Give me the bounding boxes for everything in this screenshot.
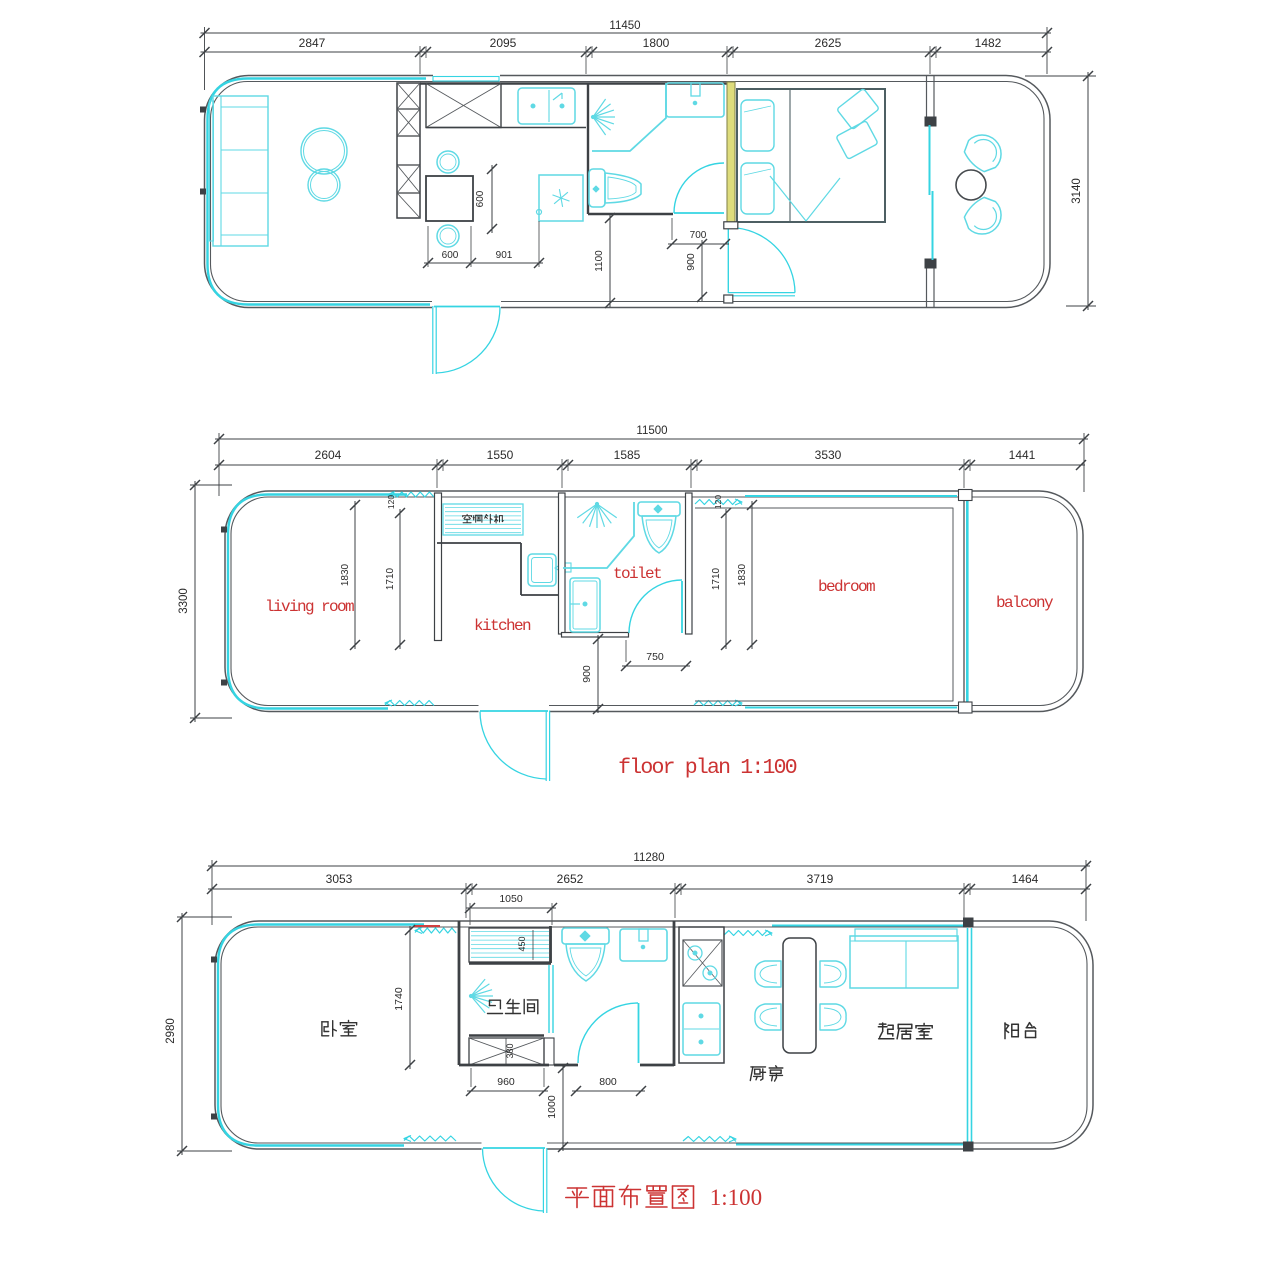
svg-text:floor plan 1:100: floor plan 1:100 xyxy=(618,756,797,780)
svg-text:1830: 1830 xyxy=(340,563,351,586)
svg-text:3719: 3719 xyxy=(807,872,834,886)
svg-text:3053: 3053 xyxy=(326,872,353,886)
svg-text:120: 120 xyxy=(713,495,723,509)
svg-text:2847: 2847 xyxy=(299,36,326,50)
svg-text:2652: 2652 xyxy=(557,872,584,886)
svg-text:11280: 11280 xyxy=(633,852,664,864)
svg-text:900: 900 xyxy=(685,253,697,271)
svg-text:1441: 1441 xyxy=(1009,448,1036,462)
svg-text:11500: 11500 xyxy=(636,425,667,437)
svg-text:11450: 11450 xyxy=(609,20,640,32)
svg-text:1100: 1100 xyxy=(594,250,605,272)
svg-text:1800: 1800 xyxy=(643,36,670,50)
svg-text:600: 600 xyxy=(442,250,459,261)
svg-text:901: 901 xyxy=(496,250,513,261)
svg-text:1710: 1710 xyxy=(711,567,722,590)
svg-text:balcony: balcony xyxy=(996,594,1054,612)
svg-text:2980: 2980 xyxy=(165,1018,177,1044)
svg-text:3300: 3300 xyxy=(178,588,190,614)
svg-text:800: 800 xyxy=(599,1076,617,1088)
svg-text:1464: 1464 xyxy=(1012,872,1039,886)
svg-text:1585: 1585 xyxy=(614,448,641,462)
svg-text:380: 380 xyxy=(505,1043,515,1058)
svg-text:1:100: 1:100 xyxy=(710,1185,762,1210)
svg-text:900: 900 xyxy=(581,665,593,683)
svg-text:750: 750 xyxy=(646,651,664,663)
svg-text:2604: 2604 xyxy=(315,448,342,462)
svg-text:1710: 1710 xyxy=(385,567,396,590)
svg-text:1000: 1000 xyxy=(546,1095,558,1119)
svg-text:1830: 1830 xyxy=(737,563,748,586)
svg-text:3530: 3530 xyxy=(815,448,842,462)
svg-text:1550: 1550 xyxy=(487,448,514,462)
svg-text:1050: 1050 xyxy=(499,893,523,905)
svg-text:kitchen: kitchen xyxy=(474,617,531,635)
svg-text:700: 700 xyxy=(690,230,707,241)
svg-text:toilet: toilet xyxy=(613,565,661,583)
svg-text:120: 120 xyxy=(386,495,396,509)
svg-text:living room: living room xyxy=(265,598,354,616)
svg-text:1482: 1482 xyxy=(975,36,1002,50)
svg-text:450: 450 xyxy=(517,936,527,951)
svg-text:2625: 2625 xyxy=(815,36,842,50)
svg-text:bedroom: bedroom xyxy=(818,578,875,596)
svg-text:960: 960 xyxy=(497,1076,515,1088)
svg-text:600: 600 xyxy=(475,190,486,207)
svg-text:2095: 2095 xyxy=(490,36,517,50)
svg-text:1740: 1740 xyxy=(393,987,405,1011)
svg-text:3140: 3140 xyxy=(1071,178,1083,204)
